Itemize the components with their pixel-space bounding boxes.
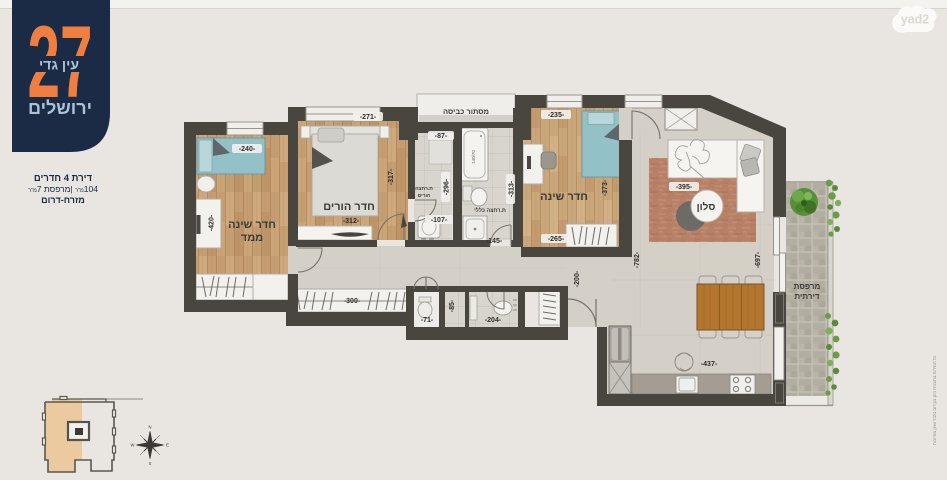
svg-text:ת.רחצה כללי: ת.רחצה כללי bbox=[474, 207, 506, 214]
svg-text:הורים: הורים bbox=[418, 193, 431, 199]
svg-text:דירתית: דירתית bbox=[794, 292, 820, 301]
svg-text:-437-: -437- bbox=[701, 361, 718, 368]
svg-text:E: E bbox=[166, 443, 169, 448]
svg-text:-697-: -697- bbox=[755, 251, 762, 268]
svg-text:W: W bbox=[131, 443, 135, 448]
svg-text:yad2: yad2 bbox=[901, 13, 930, 27]
svg-text:-395-: -395- bbox=[676, 184, 693, 191]
svg-text:-235-: -235- bbox=[548, 112, 565, 119]
svg-text:-204-: -204- bbox=[485, 317, 502, 324]
svg-text:סלון: סלון bbox=[697, 201, 716, 213]
svg-text:104מ"ר |מרפסת 7מ"ר: 104מ"ר |מרפסת 7מ"ר bbox=[28, 184, 98, 194]
svg-text:-271-: -271- bbox=[360, 114, 377, 121]
svg-text:140/70: 140/70 bbox=[471, 150, 476, 164]
svg-text:-312-: -312- bbox=[343, 218, 360, 225]
svg-text:כל המידות בתוכנית הינן בקירוב: כל המידות בתוכנית הינן בקירוב בלבד ואינן… bbox=[932, 356, 937, 445]
svg-text:-373-: -373- bbox=[602, 179, 609, 196]
svg-text:מרפסת: מרפסת bbox=[794, 282, 821, 291]
svg-text:ירושלים: ירושלים bbox=[28, 98, 92, 118]
svg-text:-265-: -265- bbox=[548, 236, 565, 243]
svg-text:-145-: -145- bbox=[486, 238, 503, 245]
svg-text:-85-: -85- bbox=[449, 299, 456, 312]
svg-text:ממד: ממד bbox=[241, 232, 263, 244]
svg-text:-420-: -420- bbox=[209, 214, 216, 231]
svg-text:S: S bbox=[149, 461, 152, 466]
svg-text:-107-: -107- bbox=[431, 217, 448, 224]
svg-text:-296-: -296- bbox=[444, 178, 451, 195]
svg-text:מסתור כביסה: מסתור כביסה bbox=[443, 107, 489, 116]
svg-text:-313-: -313- bbox=[509, 180, 516, 197]
svg-text:דירת 4 חדרים: דירת 4 חדרים bbox=[34, 173, 93, 184]
svg-text:-71-: -71- bbox=[421, 317, 434, 324]
svg-text:-300-: -300- bbox=[344, 298, 361, 305]
svg-text:חדר הורים: חדר הורים bbox=[323, 201, 375, 213]
svg-text:-240-: -240- bbox=[239, 146, 256, 153]
svg-text:עין גדי: עין גדי bbox=[39, 57, 79, 73]
svg-text:ת.רחצה: ת.רחצה bbox=[415, 186, 433, 192]
svg-text:-87-: -87- bbox=[435, 133, 448, 140]
svg-text:-200-: -200- bbox=[574, 270, 581, 287]
svg-text:חדר שינה: חדר שינה bbox=[228, 219, 276, 231]
svg-text:חדר שינה: חדר שינה bbox=[540, 191, 588, 203]
svg-text:-782-: -782- bbox=[634, 251, 641, 268]
svg-text:N: N bbox=[148, 425, 151, 430]
svg-text:מזרח-דרום: מזרח-דרום bbox=[41, 195, 85, 205]
svg-text:-317-: -317- bbox=[388, 168, 395, 185]
